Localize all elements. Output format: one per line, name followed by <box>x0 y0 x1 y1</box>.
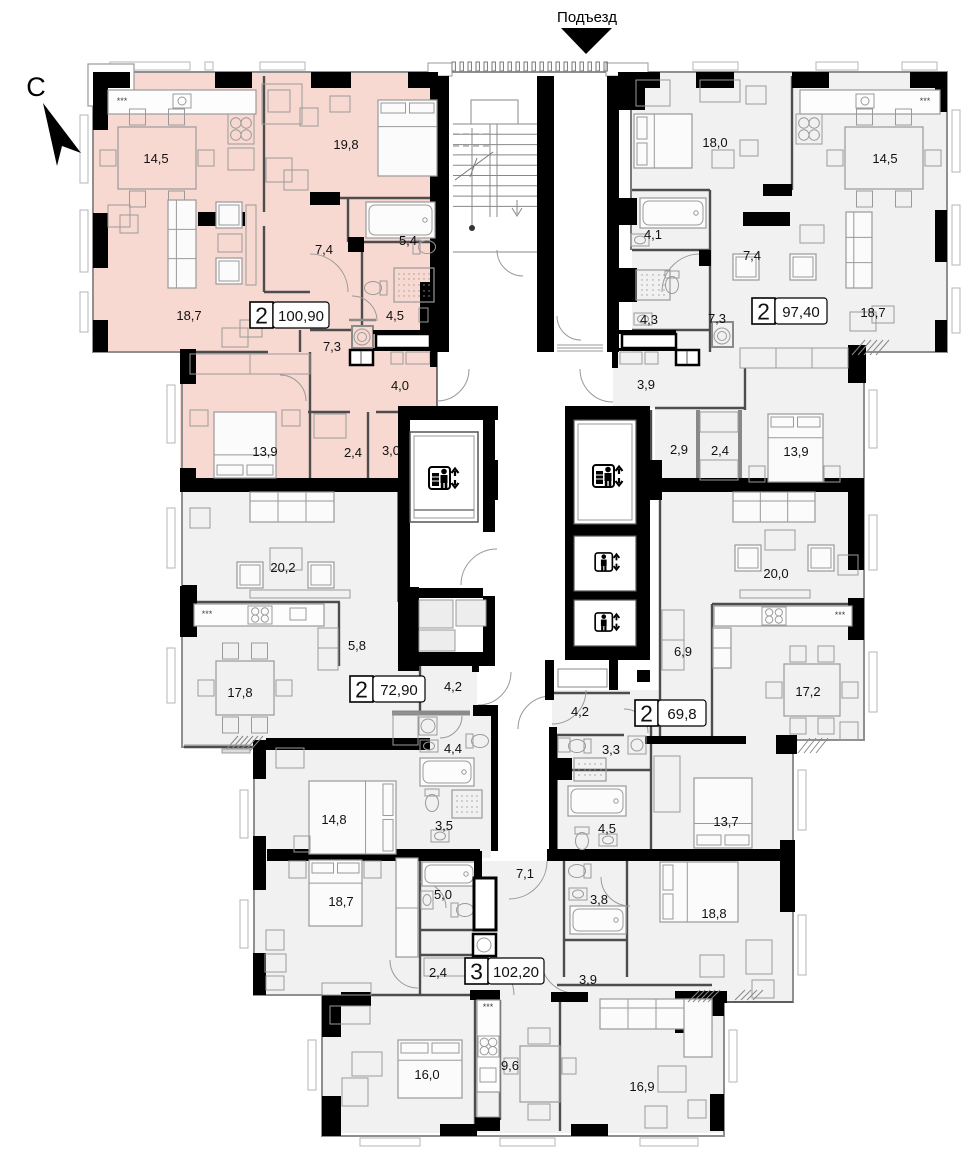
svg-text:4,2: 4,2 <box>571 704 589 719</box>
svg-text:4,1: 4,1 <box>644 227 662 242</box>
svg-text:13,9: 13,9 <box>252 444 277 459</box>
svg-text:100,90: 100,90 <box>278 308 324 325</box>
svg-text:17,2: 17,2 <box>795 684 820 699</box>
svg-text:2,4: 2,4 <box>711 443 729 458</box>
svg-text:3,0: 3,0 <box>382 443 400 458</box>
svg-text:97,40: 97,40 <box>782 304 820 321</box>
svg-text:***: *** <box>202 609 213 619</box>
svg-text:***: *** <box>483 1002 494 1012</box>
svg-text:13,9: 13,9 <box>783 444 808 459</box>
svg-text:13,7: 13,7 <box>713 814 738 829</box>
svg-text:2: 2 <box>255 303 268 329</box>
svg-text:72,90: 72,90 <box>380 682 418 699</box>
svg-text:3,5: 3,5 <box>435 818 453 833</box>
svg-text:7,4: 7,4 <box>315 242 333 257</box>
svg-text:5,0: 5,0 <box>434 887 452 902</box>
svg-text:14,5: 14,5 <box>143 151 168 166</box>
svg-text:69,8: 69,8 <box>667 706 696 723</box>
svg-text:4,0: 4,0 <box>391 378 409 393</box>
svg-text:***: *** <box>117 96 128 106</box>
svg-text:16,9: 16,9 <box>629 1079 654 1094</box>
svg-text:6,9: 6,9 <box>674 644 692 659</box>
svg-text:3: 3 <box>470 959 483 985</box>
svg-text:4,3: 4,3 <box>640 312 658 327</box>
svg-text:20,2: 20,2 <box>270 560 295 575</box>
svg-text:3,3: 3,3 <box>602 742 620 757</box>
svg-text:3,9: 3,9 <box>579 972 597 987</box>
svg-text:18,7: 18,7 <box>860 305 885 320</box>
svg-text:5,4: 5,4 <box>399 233 417 248</box>
svg-text:2: 2 <box>640 701 653 727</box>
svg-text:2,4: 2,4 <box>429 965 447 980</box>
svg-text:102,20: 102,20 <box>493 964 539 981</box>
svg-text:7,3: 7,3 <box>323 339 341 354</box>
svg-text:3,8: 3,8 <box>590 892 608 907</box>
svg-text:2: 2 <box>757 299 770 325</box>
svg-text:14,8: 14,8 <box>321 812 346 827</box>
svg-text:4,5: 4,5 <box>598 821 616 836</box>
svg-text:7,1: 7,1 <box>516 866 534 881</box>
svg-text:7,4: 7,4 <box>743 248 761 263</box>
svg-text:14,5: 14,5 <box>872 151 897 166</box>
svg-text:7,3: 7,3 <box>708 311 726 326</box>
svg-text:2,4: 2,4 <box>344 445 362 460</box>
svg-text:***: *** <box>920 96 931 106</box>
svg-text:17,8: 17,8 <box>227 685 252 700</box>
svg-text:5,8: 5,8 <box>348 638 366 653</box>
svg-text:Подъезд: Подъезд <box>557 9 617 26</box>
svg-text:4,2: 4,2 <box>444 679 462 694</box>
svg-text:4,4: 4,4 <box>444 741 462 756</box>
svg-text:18,0: 18,0 <box>702 135 727 150</box>
svg-text:2: 2 <box>355 677 368 703</box>
svg-text:9,6: 9,6 <box>501 1058 519 1073</box>
svg-text:18,7: 18,7 <box>176 308 201 323</box>
svg-text:19,8: 19,8 <box>333 137 358 152</box>
svg-text:***: *** <box>835 610 846 620</box>
svg-text:4,5: 4,5 <box>386 308 404 323</box>
svg-text:18,7: 18,7 <box>328 894 353 909</box>
svg-text:16,0: 16,0 <box>414 1067 439 1082</box>
svg-text:18,8: 18,8 <box>701 906 726 921</box>
svg-text:3,9: 3,9 <box>637 377 655 392</box>
svg-text:20,0: 20,0 <box>763 566 788 581</box>
svg-text:2,9: 2,9 <box>670 442 688 457</box>
svg-text:С: С <box>26 72 46 102</box>
